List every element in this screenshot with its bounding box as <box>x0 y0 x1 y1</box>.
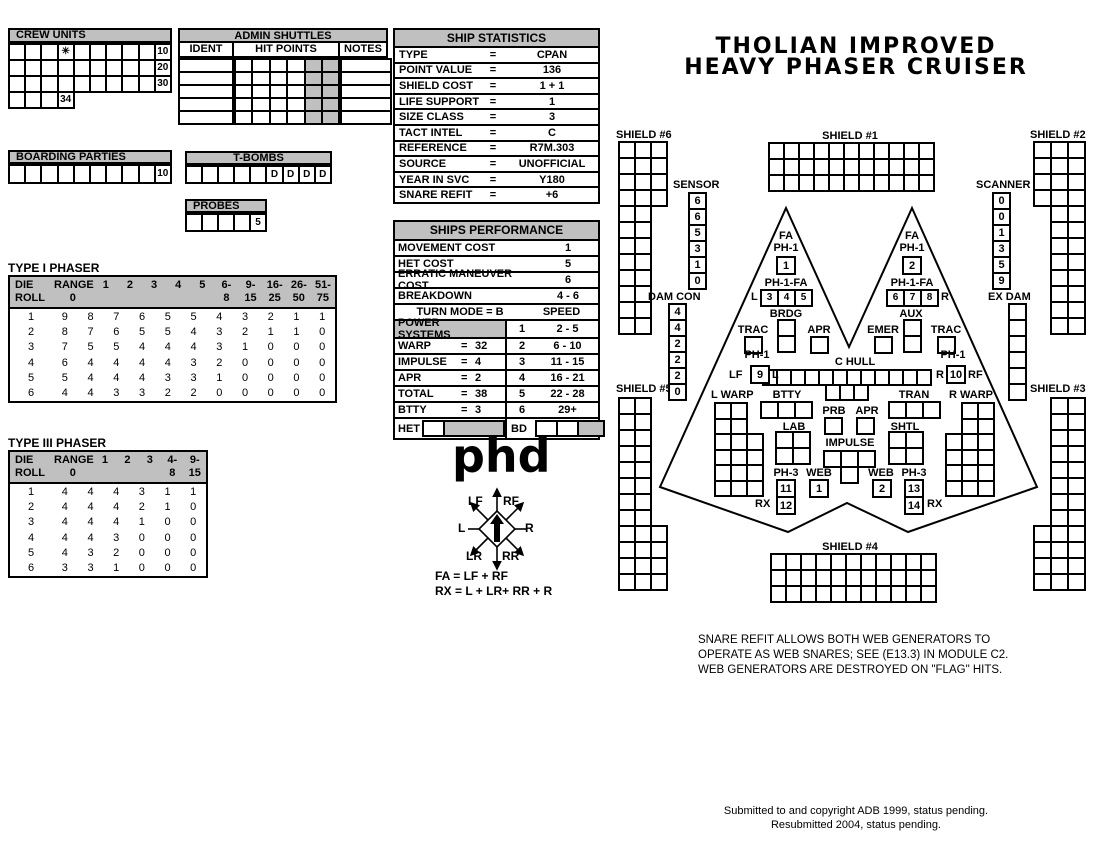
speed-column-header: SPEED <box>525 306 598 318</box>
damage-value: 3 <box>181 372 207 384</box>
fa-right-arc-label: FA <box>905 231 919 242</box>
kv-row: MOVEMENT COST1 <box>395 239 598 255</box>
phaser-table-row: 5432000 <box>10 545 206 560</box>
damage-value: 0 <box>284 372 310 384</box>
kv-val: 136 <box>506 64 598 76</box>
ship-statistics-header: SHIP STATISTICS <box>395 30 598 46</box>
kv-row: POINT VALUE=136 <box>395 62 598 78</box>
phaser-table-row: 2444210 <box>10 499 206 514</box>
shield-3-grid <box>1033 397 1086 591</box>
hit-box[interactable] <box>178 110 234 125</box>
damage-value: 3 <box>181 357 207 369</box>
damage-value: 4 <box>103 357 129 369</box>
phaser-9-box: 9 <box>750 365 770 384</box>
damage-value: 0 <box>284 341 310 353</box>
damage-control-track: 442220 <box>668 303 687 401</box>
kv-eq: = <box>461 372 473 384</box>
die-roll-value: 2 <box>10 501 52 513</box>
kv-val: 29+ <box>537 404 598 416</box>
damage-value: 5 <box>129 326 155 338</box>
probes-header: PROBES <box>185 199 267 213</box>
phaser-1-box: 1 <box>776 256 796 275</box>
hit-box[interactable]: 14 <box>904 496 924 515</box>
kv-eq: = <box>461 340 473 352</box>
hit-box[interactable] <box>903 335 922 353</box>
hit-box[interactable] <box>634 317 652 335</box>
speed-table-rows: 12 - 526 - 10311 - 15416 - 21522 - 28629… <box>507 321 598 417</box>
kv-eq: = <box>480 80 506 92</box>
damage-value: 4 <box>103 516 129 528</box>
kv-row: 416 - 21 <box>507 369 598 385</box>
hit-box[interactable]: 9 <box>992 272 1011 290</box>
kv-lab: WARP <box>398 340 461 352</box>
hit-box[interactable]: 0 <box>668 383 687 401</box>
kv-val: UNOFFICIAL <box>506 158 598 170</box>
ph1fa-right-arc: R <box>941 292 949 303</box>
phaser-table-row: 554443310000 <box>10 370 335 385</box>
left-warp-label: L WARP <box>711 390 754 401</box>
kv-eq: = <box>461 404 473 416</box>
phaser-table-row: 4443000 <box>10 530 206 545</box>
ph1-waist-left-arc-pre: LF <box>729 370 742 381</box>
damage-value: 5 <box>103 341 129 353</box>
kv-row: BREAKDOWN4 - 6 <box>395 287 598 303</box>
page-title: THOLIAN IMPROVED HEAVY PHASER CRUISER <box>684 36 1028 78</box>
kv-val: CPAN <box>506 49 598 61</box>
kv-row: REFERENCE=R7M.303 <box>395 140 598 156</box>
damage-value: 1 <box>309 311 335 323</box>
kv-eq: = <box>480 127 506 139</box>
kv-row: YEAR IN SVC=Y180 <box>395 171 598 187</box>
kv-eq: = <box>480 96 506 108</box>
kv-lab: ERRATIC MANEUVER COST <box>398 268 538 292</box>
die-roll-value: 1 <box>10 486 52 498</box>
kv-row: 12 - 5 <box>507 321 598 337</box>
damage-value: 9 <box>52 311 78 323</box>
phaser-2-box: 2 <box>902 256 922 275</box>
ph1-waist-right-arc-pre: R <box>936 370 944 381</box>
damage-value: 0 <box>180 501 206 513</box>
shuttle-hit-points-grid <box>234 58 340 125</box>
ship-statistics-rows: TYPE=CPANPOINT VALUE=136SHIELD COST=1 + … <box>395 46 598 202</box>
damage-value: 3 <box>103 387 129 399</box>
damage-value: 3 <box>78 562 104 574</box>
kv-val: C <box>506 127 598 139</box>
hit-box[interactable] <box>918 174 935 192</box>
hit-box[interactable] <box>577 420 605 437</box>
kv-val: 1 <box>506 96 598 108</box>
damage-value: 1 <box>284 326 310 338</box>
damage-value: 4 <box>52 501 78 513</box>
shield-6-grid <box>618 141 668 335</box>
damage-value: 3 <box>129 387 155 399</box>
damage-value: 5 <box>78 341 104 353</box>
kv-lab: APR <box>398 372 461 384</box>
damage-value: 4 <box>78 501 104 513</box>
damage-value: 4 <box>181 326 207 338</box>
kv-val: 16 - 21 <box>537 372 598 384</box>
kv-val: 6 - 10 <box>537 340 598 352</box>
compass-rf-label: RF <box>503 495 519 507</box>
hit-box[interactable] <box>857 450 876 468</box>
damage-value: 0 <box>258 357 284 369</box>
ph1-right-fa-label: PH-1 <box>899 243 924 254</box>
damage-value: 4 <box>206 311 232 323</box>
hit-box[interactable] <box>1008 383 1027 401</box>
damage-value: 0 <box>232 357 258 369</box>
sensor-track: 665310 <box>688 192 707 290</box>
ph1-waist-right-label: PH-1 <box>940 350 965 361</box>
hit-box[interactable]: 2 <box>902 256 922 275</box>
damage-value: 0 <box>129 562 155 574</box>
damage-value: 6 <box>129 311 155 323</box>
damage-value: 3 <box>206 341 232 353</box>
kv-val: 11 - 15 <box>537 356 598 368</box>
apr-top-box <box>810 336 829 354</box>
kv-val: 5 <box>538 258 598 270</box>
kv-lab: 3 <box>507 356 537 368</box>
damage-value: 0 <box>258 372 284 384</box>
damage-value: 3 <box>232 311 258 323</box>
die-roll-value: 4 <box>10 357 52 369</box>
die-roll-value: 2 <box>10 326 52 338</box>
kv-lab: SOURCE <box>399 158 480 170</box>
damage-value: 1 <box>258 326 284 338</box>
damage-value: 4 <box>52 486 78 498</box>
kv-lab: MOVEMENT COST <box>398 242 538 254</box>
damage-value: 4 <box>78 516 104 528</box>
die-roll-value: 3 <box>10 341 52 353</box>
battery-label: BTTY <box>773 390 802 401</box>
damage-value: 3 <box>155 372 181 384</box>
shuttle-notes-grid <box>340 58 392 125</box>
kv-row: 26 - 10 <box>507 337 598 353</box>
snare-note-line-2: OPERATE AS WEB SNARES; SEE (E13.3) IN MO… <box>698 649 1008 661</box>
shield-4-grid <box>770 553 937 603</box>
kv-lab: TYPE <box>399 49 480 61</box>
shield-2-grid <box>1033 141 1086 335</box>
kv-row: POWER SYSTEMS <box>395 321 505 337</box>
kv-lab: TOTAL <box>398 388 461 400</box>
damage-value: 0 <box>309 341 335 353</box>
apr-bottom-label: APR <box>855 406 878 417</box>
damage-value: 8 <box>78 311 104 323</box>
damage-value: 0 <box>180 516 206 528</box>
hit-box[interactable] <box>422 420 445 437</box>
ph1fa-right-label: PH-1-FA <box>891 278 934 289</box>
compass-lf-label: LF <box>468 495 483 507</box>
die-roll-value: 5 <box>10 547 52 559</box>
transporter-label: TRAN <box>899 390 930 401</box>
damage-value: 0 <box>284 357 310 369</box>
kv-lab: SHIELD COST <box>399 80 480 92</box>
hit-box[interactable] <box>853 384 869 401</box>
t-bombs-grid: DDDD <box>185 165 332 184</box>
snare-note-line-3: WEB GENERATORS ARE DESTROYED ON "FLAG" H… <box>698 664 1002 676</box>
compass-lr-label: LR <box>466 550 482 562</box>
rx-left-arc: RX <box>755 499 770 510</box>
power-systems-rows: POWER SYSTEMSWARP=32IMPULSE=4APR=2TOTAL=… <box>395 321 507 417</box>
kv-val: 6 <box>538 274 598 286</box>
transporter-boxes <box>888 401 941 419</box>
hit-box[interactable] <box>977 480 995 498</box>
damage-value: 1 <box>284 311 310 323</box>
kv-val: Y180 <box>506 174 598 186</box>
kv-eq: = <box>480 64 506 76</box>
damage-value: 4 <box>78 387 104 399</box>
damage-value: 0 <box>180 532 206 544</box>
hit-box[interactable]: 0 <box>688 272 707 290</box>
kv-val: R7M.303 <box>506 142 598 154</box>
excess-damage-label: EX DAM <box>988 292 1031 303</box>
phaser-345-boxes: 345 <box>760 289 813 307</box>
notes-column-header: NOTES <box>340 43 386 56</box>
kv-lab: BTTY <box>398 404 461 416</box>
kv-row: SOURCE=UNOFFICIAL <box>395 155 598 171</box>
damage-value: 4 <box>155 341 181 353</box>
ph1-waist-left-label: PH-1 <box>744 350 769 361</box>
kv-lab: IMPULSE <box>398 356 461 368</box>
damage-value: 4 <box>78 357 104 369</box>
shield-6-label: SHIELD #6 <box>616 130 672 141</box>
kv-lab: POINT VALUE <box>399 64 480 76</box>
type-1-phaser-title: TYPE I PHASER <box>8 261 99 275</box>
damage-value: 1 <box>155 486 181 498</box>
compass-rr-label: RR <box>502 550 519 562</box>
hit-box[interactable] <box>794 401 813 419</box>
shuttle-ident-grid <box>178 58 234 125</box>
hit-box[interactable]: 1 <box>809 479 829 498</box>
damage-value: 3 <box>52 562 78 574</box>
apr-bottom-box <box>856 417 875 435</box>
right-warp-label: R WARP <box>949 390 993 401</box>
damage-control-label: DAM CON <box>648 292 701 303</box>
damage-value: 0 <box>155 562 181 574</box>
t-bombs-header: T-BOMBS <box>185 151 332 165</box>
scanner-label: SCANNER <box>976 180 1030 191</box>
ph1-waist-left-arc-post: L <box>772 370 779 381</box>
shield-1-label: SHIELD #1 <box>822 131 878 142</box>
phaser-table-row: 464444320000 <box>10 355 335 370</box>
die-roll-value: 5 <box>10 372 52 384</box>
type-3-phaser-table: DIEROLLRANGE01234-89-1514443112444210344… <box>8 450 208 578</box>
phd-logo: phd <box>452 432 551 480</box>
hit-box[interactable] <box>792 447 811 465</box>
damage-value: 4 <box>52 547 78 559</box>
damage-value: 2 <box>232 326 258 338</box>
phaser-10-box: 10 <box>946 365 966 384</box>
impulse-label: IMPULSE <box>826 438 875 449</box>
compass-r-label: R <box>525 522 534 534</box>
hit-box[interactable] <box>840 466 859 484</box>
admin-shuttles-panel: ADMIN SHUTTLES IDENT HIT POINTS NOTES <box>178 28 388 125</box>
ph1fa-left-label: PH-1-FA <box>765 278 808 289</box>
damage-value: 0 <box>155 532 181 544</box>
title-line-1: THOLIAN IMPROVED <box>684 36 1028 57</box>
kv-lab: POWER SYSTEMS <box>398 317 461 341</box>
damage-value: 2 <box>129 501 155 513</box>
damage-value: 0 <box>258 341 284 353</box>
kv-row: IMPULSE=4 <box>395 353 505 369</box>
hit-box[interactable]: 8 <box>920 289 939 307</box>
kv-lab: 2 <box>507 340 537 352</box>
emergency-bridge-box <box>874 336 893 354</box>
phaser-table-row: 3444100 <box>10 515 206 530</box>
damage-value: 4 <box>103 501 129 513</box>
admin-shuttles-header: ADMIN SHUTTLES <box>178 28 388 43</box>
snare-note-line-1: SNARE REFIT ALLOWS BOTH WEB GENERATORS T… <box>698 634 990 646</box>
hit-box[interactable] <box>650 189 668 207</box>
damage-value: 4 <box>129 341 155 353</box>
hit-box[interactable]: 12 <box>776 496 796 515</box>
kv-row: 311 - 15 <box>507 353 598 369</box>
kv-row: SIZE CLASS=3 <box>395 108 598 124</box>
hit-box[interactable] <box>824 417 843 435</box>
damage-value: 6 <box>103 326 129 338</box>
web-right-label: WEB <box>868 468 894 479</box>
hit-box[interactable]: 5 <box>794 289 813 307</box>
hit-box[interactable] <box>340 110 392 125</box>
kv-eq: = <box>480 189 506 201</box>
hit-box[interactable]: D <box>314 165 332 184</box>
kv-eq: = <box>461 356 473 368</box>
phaser-table-row: 1444311 <box>10 484 206 499</box>
shield-1-grid <box>768 142 935 192</box>
phaser-678-boxes: 678 <box>886 289 939 307</box>
performance-simple-rows: MOVEMENT COST1HET COST5ERRATIC MANEUVER … <box>395 239 598 303</box>
bridge-boxes <box>777 319 796 353</box>
hit-box[interactable]: 10 <box>946 365 966 384</box>
damage-value: 7 <box>103 311 129 323</box>
damage-value: 0 <box>206 387 232 399</box>
damage-value: 5 <box>52 372 78 384</box>
shield-5-grid <box>618 397 668 591</box>
damage-value: 0 <box>129 547 155 559</box>
damage-value: 4 <box>155 357 181 369</box>
kv-lab: SIZE CLASS <box>399 111 480 123</box>
hit-box[interactable] <box>922 401 941 419</box>
ships-performance-header: SHIPS PERFORMANCE <box>395 222 598 239</box>
hit-box[interactable]: 2 <box>872 479 892 498</box>
damage-value: 0 <box>232 372 258 384</box>
damage-value: 1 <box>232 341 258 353</box>
damage-value: 1 <box>129 516 155 528</box>
right-warp-grid <box>945 402 995 497</box>
battery-boxes <box>760 401 813 419</box>
damage-value: 2 <box>155 387 181 399</box>
hit-box[interactable] <box>556 420 579 437</box>
hit-box[interactable] <box>777 335 796 353</box>
center-hull-label: C HULL <box>835 357 875 368</box>
hit-box[interactable] <box>874 336 893 354</box>
damage-value: 4 <box>129 357 155 369</box>
damage-value: 1 <box>155 501 181 513</box>
hit-box[interactable]: 10 <box>154 164 172 184</box>
hit-box[interactable] <box>920 585 937 603</box>
damage-value: 0 <box>284 387 310 399</box>
damage-value: 2 <box>206 357 232 369</box>
probes-grid: 5 <box>185 213 267 232</box>
tractor-right-label: TRAC <box>931 325 962 336</box>
compass-l-label: L <box>458 522 465 534</box>
kv-row: TYPE=CPAN <box>395 46 598 62</box>
probe-label: PRB <box>822 406 845 417</box>
hit-box[interactable] <box>650 573 668 591</box>
left-warp-grid <box>714 402 764 497</box>
damage-value: 0 <box>232 387 258 399</box>
rx-arc-formula: RX = L + LR+ RR + R <box>435 584 552 598</box>
kv-row: TACT INTEL=C <box>395 124 598 140</box>
hit-box[interactable]: 9 <box>750 365 770 384</box>
hit-box[interactable] <box>905 447 924 465</box>
damage-value: 3 <box>78 547 104 559</box>
hit-box[interactable] <box>1067 317 1086 335</box>
hit-box[interactable] <box>746 480 764 498</box>
kv-lab: SNARE REFIT <box>399 189 480 201</box>
damage-value: 2 <box>258 311 284 323</box>
hit-box[interactable] <box>916 369 932 386</box>
copyright-line-2: Resubmitted 2004, status pending. <box>771 819 941 831</box>
ph1-left-fa-label: PH-1 <box>773 243 798 254</box>
kv-lab: BREAKDOWN <box>398 290 538 302</box>
kv-val: 4 - 6 <box>538 290 598 302</box>
damage-value: 0 <box>155 547 181 559</box>
damage-value: 0 <box>309 387 335 399</box>
damage-value: 1 <box>180 486 206 498</box>
kv-eq: = <box>480 111 506 123</box>
emergency-bridge-label: EMER <box>867 325 899 336</box>
kv-lab: LIFE SUPPORT <box>399 96 480 108</box>
tractor-left-label: TRAC <box>738 325 769 336</box>
kv-val: 38 <box>473 388 505 400</box>
web-generator-2-box: 2 <box>872 479 892 498</box>
hit-box[interactable]: 34 <box>57 91 75 109</box>
damage-value: 8 <box>52 326 78 338</box>
hit-box[interactable] <box>1067 573 1086 591</box>
kv-row: APR=2 <box>395 369 505 385</box>
kv-val: 32 <box>473 340 505 352</box>
damage-value: 2 <box>103 547 129 559</box>
damage-value: 3 <box>103 532 129 544</box>
boarding-parties-header: BOARDING PARTIES <box>8 150 172 164</box>
hit-box[interactable] <box>321 110 340 125</box>
power-speed-zone: POWER SYSTEMSWARP=32IMPULSE=4APR=2TOTAL=… <box>395 319 598 417</box>
hit-box[interactable]: 30 <box>154 75 172 93</box>
hit-points-column-header: HIT POINTS <box>234 43 340 56</box>
hit-box[interactable] <box>810 336 829 354</box>
phaser-11-12-boxes: 1112 <box>776 479 796 515</box>
kv-row: WARP=32 <box>395 337 505 353</box>
phaser-table-row: 375544431000 <box>10 340 335 355</box>
hit-box[interactable] <box>856 417 875 435</box>
web-left-label: WEB <box>806 468 832 479</box>
ph3-left-label: PH-3 <box>773 468 798 479</box>
damage-value: 6 <box>52 357 78 369</box>
type-3-phaser-title: TYPE III PHASER <box>8 436 106 450</box>
ident-column-header: IDENT <box>180 43 234 56</box>
damage-value: 4 <box>129 372 155 384</box>
die-roll-value: 1 <box>10 311 52 323</box>
admin-shuttles-column-headers: IDENT HIT POINTS NOTES <box>178 43 388 58</box>
ships-performance-panel: SHIPS PERFORMANCE MOVEMENT COST1HET COST… <box>393 220 600 440</box>
kv-lab: YEAR IN SVC <box>399 174 480 186</box>
hit-box[interactable]: 1 <box>776 256 796 275</box>
kv-val: 4 <box>473 356 505 368</box>
kv-lab: REFERENCE <box>399 142 480 154</box>
damage-value: 4 <box>78 372 104 384</box>
kv-val: 2 <box>473 372 505 384</box>
hit-box[interactable]: 5 <box>249 213 267 232</box>
